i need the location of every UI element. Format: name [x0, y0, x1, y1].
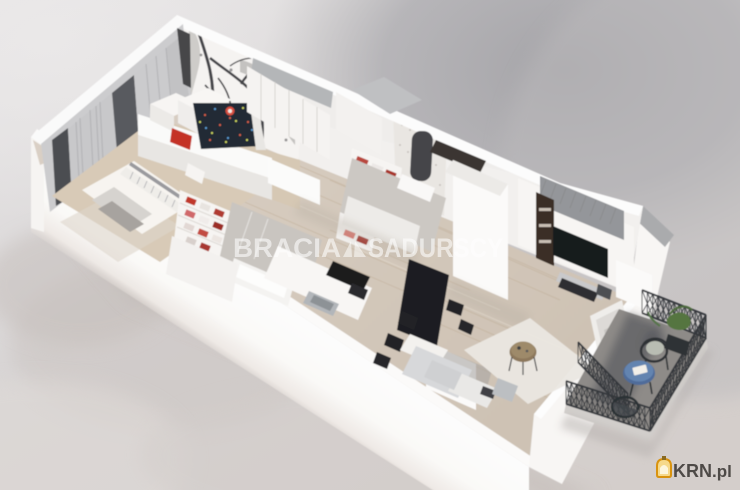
- svg-text:BRACIA: BRACIA: [233, 233, 341, 263]
- svg-text:KRN.pl: KRN.pl: [673, 461, 732, 481]
- svg-text:SADURSCY: SADURSCY: [368, 233, 503, 263]
